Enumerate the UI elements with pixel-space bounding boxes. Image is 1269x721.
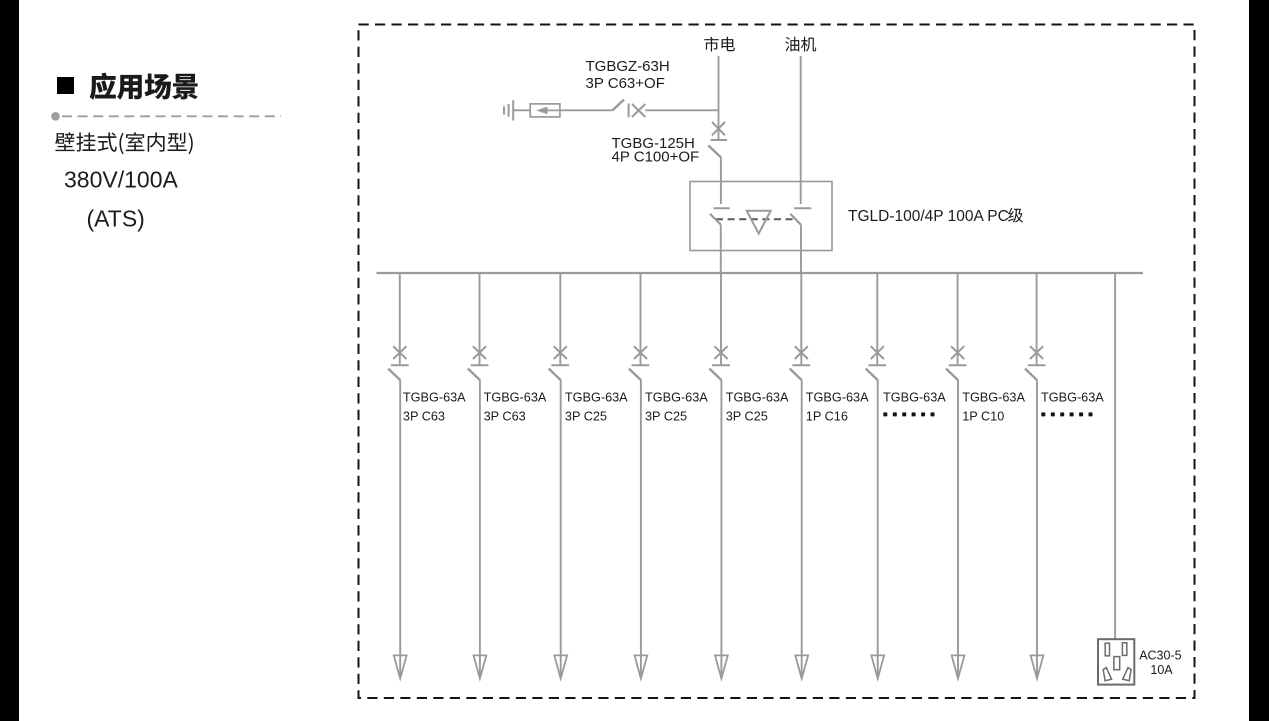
- svg-text:TGBG-63A: TGBG-63A: [565, 390, 628, 404]
- svg-text:TGBG-63A: TGBG-63A: [645, 390, 708, 404]
- svg-text:(ATS): (ATS): [87, 206, 145, 232]
- svg-text:TGBGZ-63H: TGBGZ-63H: [586, 58, 670, 75]
- svg-text:TGBG-63A: TGBG-63A: [806, 390, 869, 404]
- svg-text:TGBG-63A: TGBG-63A: [726, 390, 789, 404]
- svg-text:TGLD-100/4P 100A PC: TGLD-100/4P 100A PC: [848, 208, 1009, 225]
- svg-text:1P C16: 1P C16: [806, 409, 848, 423]
- svg-text:TGBG-63A: TGBG-63A: [403, 390, 466, 404]
- svg-text:3P C63+OF: 3P C63+OF: [586, 75, 665, 92]
- svg-text:380V/100A: 380V/100A: [64, 167, 178, 193]
- svg-text:3P C25: 3P C25: [726, 409, 768, 423]
- svg-text:TGBG-63A: TGBG-63A: [484, 390, 547, 404]
- svg-text:3P C25: 3P C25: [565, 409, 607, 423]
- svg-text:3P C25: 3P C25: [645, 409, 687, 423]
- svg-text:TGBG-63A: TGBG-63A: [962, 390, 1025, 404]
- svg-text:1P C10: 1P C10: [962, 409, 1004, 423]
- svg-text:3P C63: 3P C63: [403, 409, 445, 423]
- svg-text:TGBG-63A: TGBG-63A: [1041, 390, 1104, 404]
- svg-text:3P C63: 3P C63: [484, 409, 526, 423]
- svg-text:TGBG-63A: TGBG-63A: [883, 390, 946, 404]
- svg-text:AC30-5: AC30-5: [1139, 649, 1181, 663]
- svg-text:10A: 10A: [1150, 663, 1173, 677]
- svg-text:4P C100+OF: 4P C100+OF: [612, 148, 700, 165]
